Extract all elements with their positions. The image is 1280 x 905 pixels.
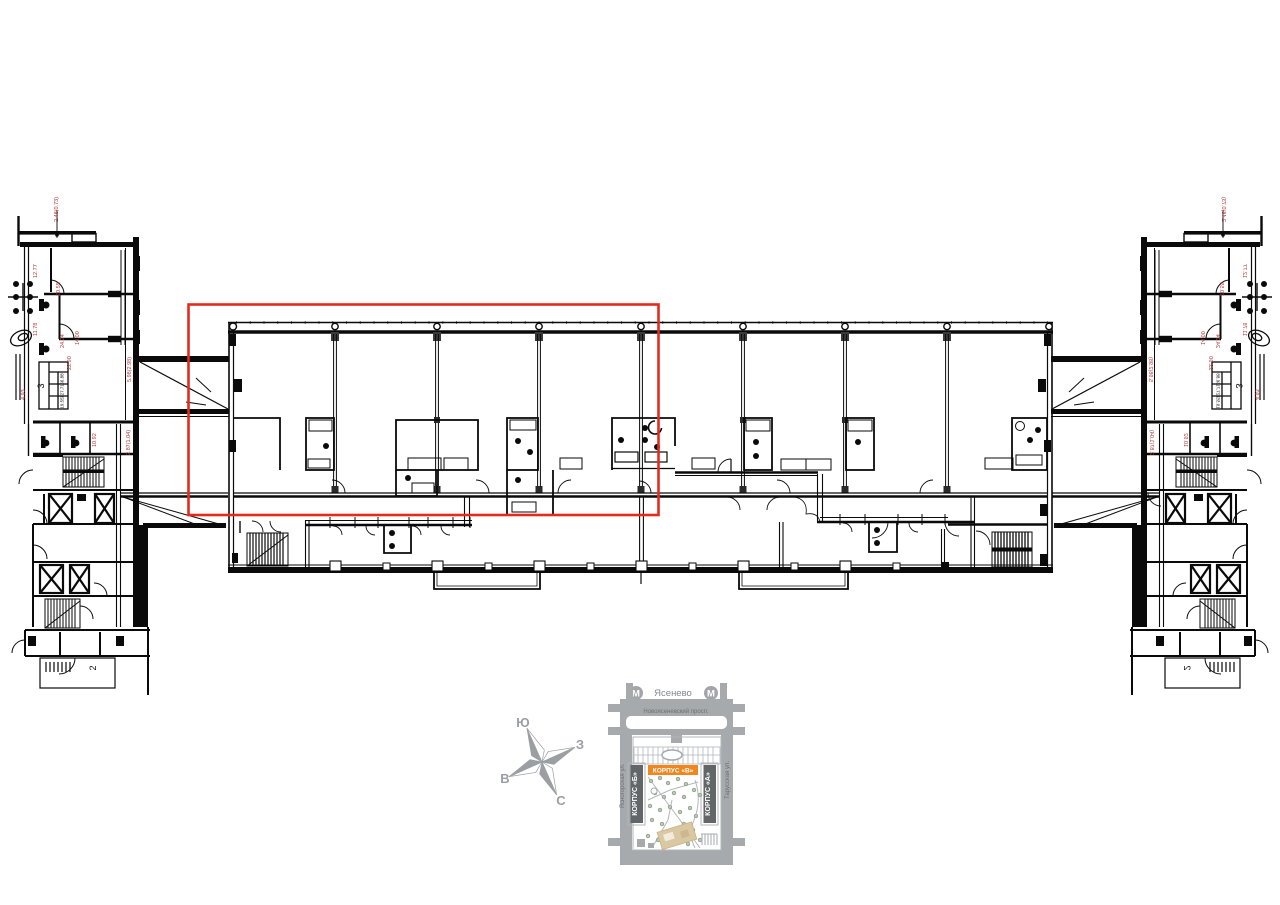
svg-text:С: С <box>556 793 566 808</box>
svg-text:20.55: 20.55 <box>56 282 62 296</box>
svg-text:Тарусская ул.: Тарусская ул. <box>725 761 731 799</box>
svg-text:24.24: 24.24 <box>60 334 66 348</box>
svg-text:КОРПУС «Б»: КОРПУС «Б» <box>632 772 639 816</box>
svg-text:56.88: 56.88 <box>60 373 65 385</box>
svg-text:2.87(1.04): 2.87(1.04) <box>126 430 132 455</box>
svg-text:Новоясеневский просп.: Новоясеневский просп. <box>643 708 709 715</box>
svg-text:22.90: 22.90 <box>67 356 73 370</box>
svg-text:127.71: 127.71 <box>60 384 65 398</box>
svg-text:Ясенево: Ясенево <box>654 688 692 699</box>
svg-text:КОРПУС «А»: КОРПУС «А» <box>705 772 712 816</box>
svg-text:2: 2 <box>88 665 98 670</box>
svg-text:Ю: Ю <box>516 715 529 730</box>
svg-text:19.55: 19.55 <box>60 397 65 409</box>
svg-text:14.00: 14.00 <box>75 331 81 345</box>
svg-text:12.77: 12.77 <box>33 264 39 278</box>
svg-text:М: М <box>632 689 640 700</box>
svg-text:10.92: 10.92 <box>92 433 98 447</box>
svg-text:М: М <box>707 689 715 700</box>
svg-text:2.48(0.73): 2.48(0.73) <box>54 197 60 222</box>
svg-text:Ясногорская ул.: Ясногорская ул. <box>620 763 626 808</box>
svg-text:КОРПУС «В»: КОРПУС «В» <box>653 768 694 775</box>
svg-text:4.93: 4.93 <box>21 389 27 400</box>
svg-text:11.78: 11.78 <box>33 323 39 336</box>
svg-text:З: З <box>576 737 584 752</box>
svg-text:В: В <box>500 771 509 786</box>
svg-text:3: 3 <box>36 383 46 388</box>
svg-text:5.98(2.98): 5.98(2.98) <box>127 357 133 382</box>
